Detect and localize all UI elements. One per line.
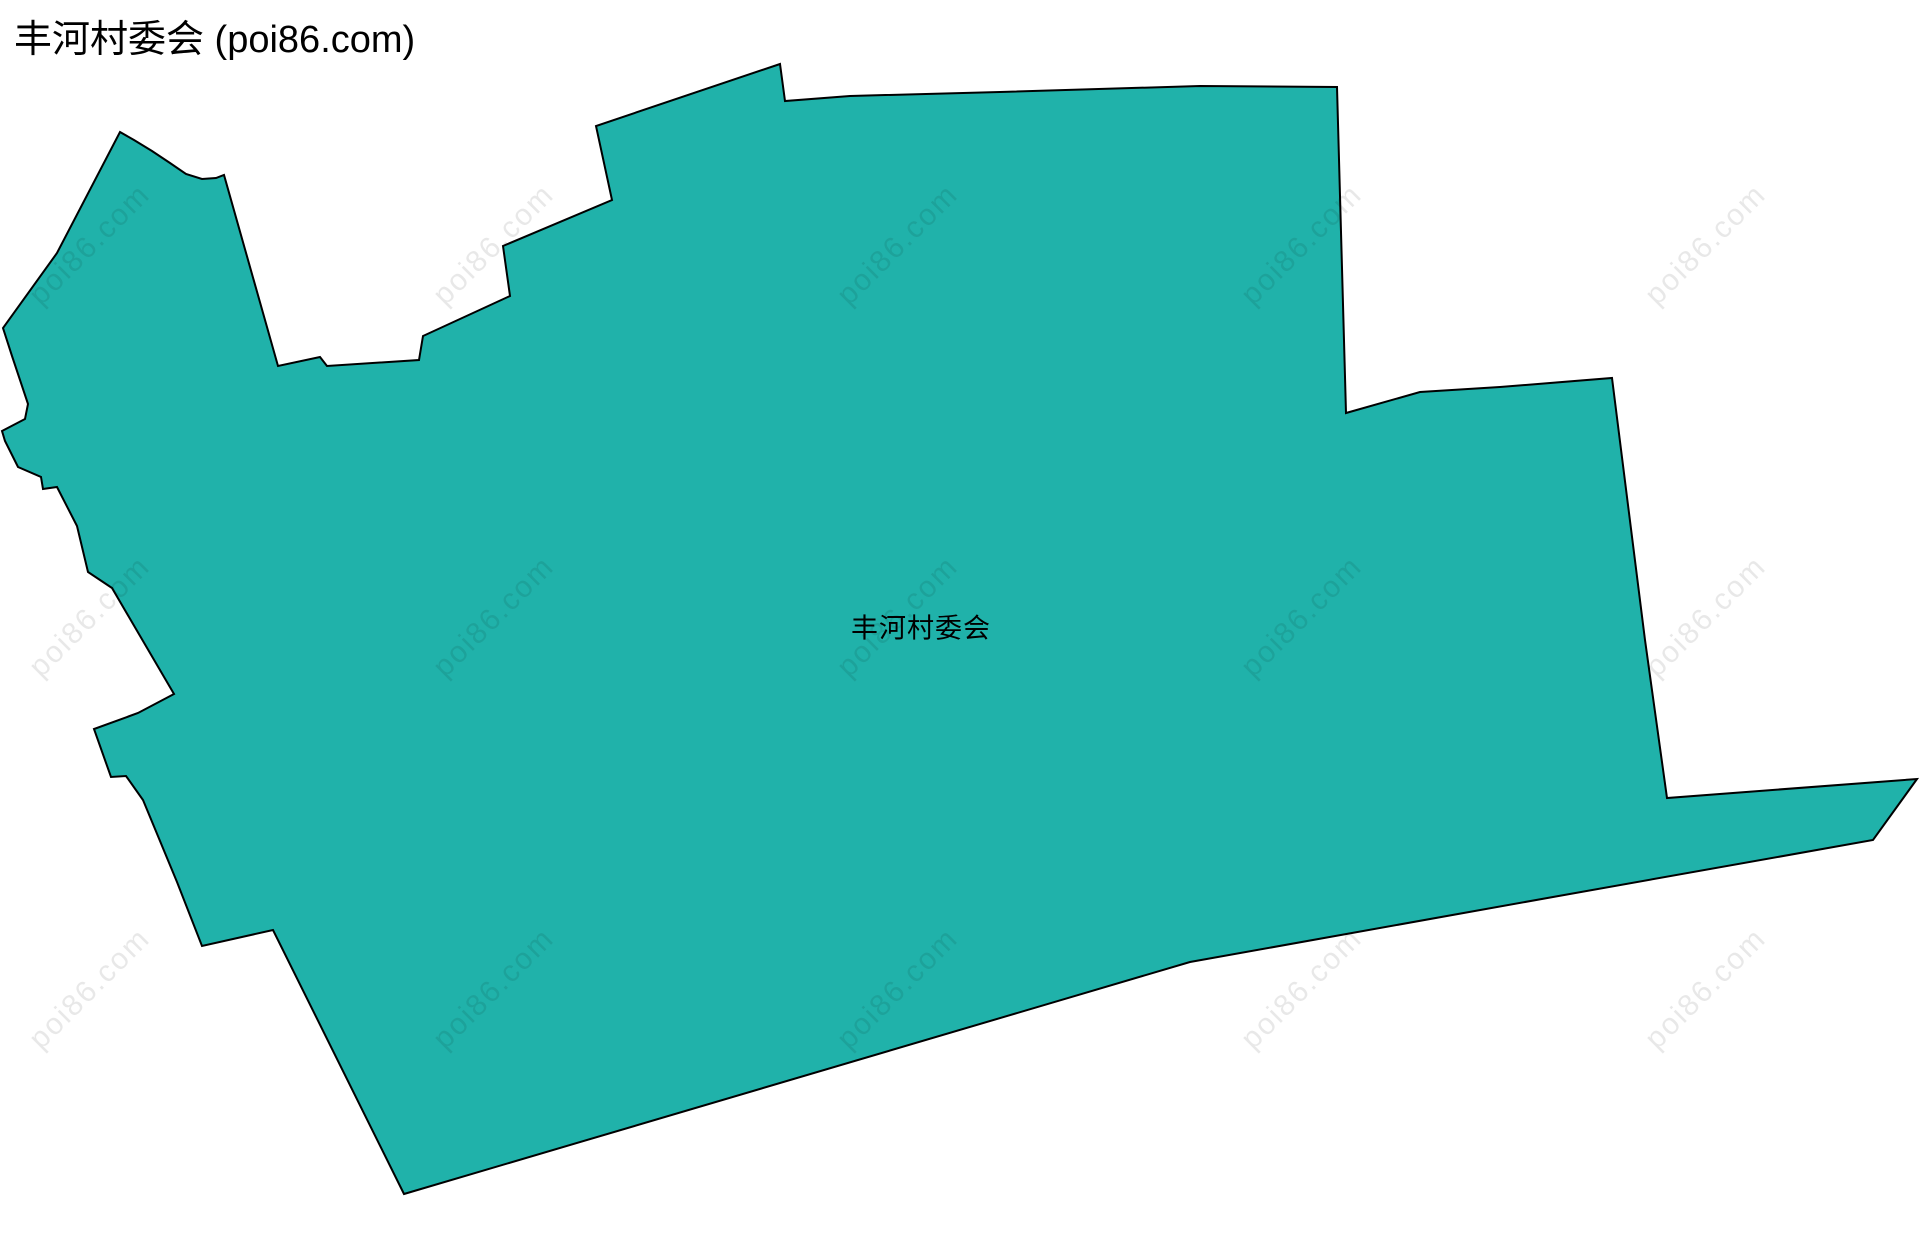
region-label: 丰河村委会 — [851, 607, 991, 646]
page-title: 丰河村委会 (poi86.com) — [14, 8, 415, 63]
map-image: poi86.compoi86.compoi86.compoi86.compoi8… — [0, 0, 1920, 1258]
